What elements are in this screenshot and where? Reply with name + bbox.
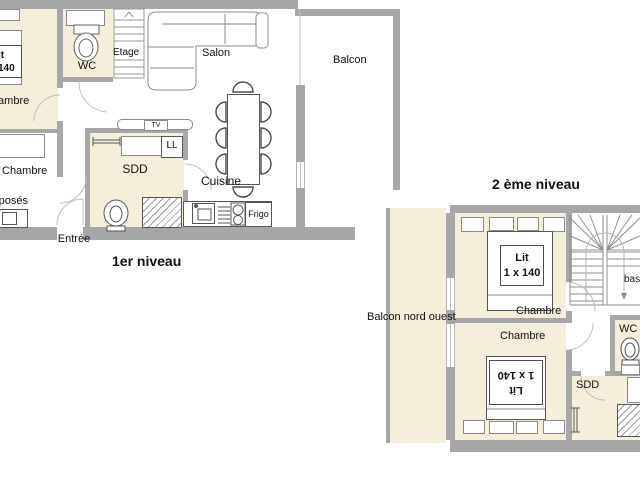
- level1-balcon-label: Balcon: [333, 54, 367, 67]
- level2-title: 2 ème niveau: [492, 176, 580, 192]
- level1-salon-label: Salon: [202, 47, 230, 60]
- level2-sdd-label: SDD: [576, 379, 599, 392]
- bed-size-line1: Lit: [509, 383, 522, 397]
- bed-size-line2: 1 x 140: [0, 62, 15, 75]
- washing-machine-label: LL: [161, 140, 183, 152]
- level1-chambre-top-label: Chambre: [0, 95, 29, 108]
- kitchen-sink-detail: [195, 205, 212, 221]
- level1-etage-label: Etage: [113, 47, 139, 59]
- toilet-icon: [74, 25, 99, 61]
- level2-chambre-top-label: Chambre: [516, 305, 561, 318]
- stove-icon: [231, 203, 245, 225]
- bed-label-rotated: Lit 1 x 140: [489, 360, 543, 405]
- toilet-icon: [621, 338, 639, 365]
- level1-cuisine-label: Cuisine: [201, 175, 241, 189]
- bed-size-line1: Lit: [515, 251, 528, 265]
- level1-sdd-label: SDD: [110, 163, 160, 177]
- stairs-up-icon: [114, 9, 144, 78]
- bed-size-line2: 1 x 140: [498, 368, 535, 382]
- stairs-direction-label: bas: [624, 274, 640, 286]
- toilet-icon: [104, 200, 128, 231]
- level2-wc-label: WC: [619, 323, 637, 336]
- bed-label: Lit 1 x 140: [500, 245, 544, 286]
- dish-rack-icon: [218, 207, 230, 223]
- fridge-label: Frigo: [245, 209, 272, 219]
- level2-balcon-label: Balcon nord ouest: [367, 311, 456, 324]
- bed-size-line2: 1 x 140: [504, 266, 541, 280]
- level1-title: 1er niveau: [112, 253, 181, 269]
- bed-size-line1: Lit: [0, 49, 4, 62]
- towel-rail-icon: [93, 137, 120, 146]
- tv-label: TV: [144, 120, 168, 131]
- level1-chambre-mid-label: Chambre: [2, 165, 47, 178]
- stairs-down-icon: [570, 215, 640, 305]
- level1-bunk-label: superposés: [0, 195, 28, 208]
- towel-rail-icon: [571, 408, 580, 432]
- level1-wc-label: WC: [63, 60, 111, 73]
- bed-label: Lit 1 x 140: [0, 45, 22, 78]
- level2-chambre-bottom-label: Chambre: [500, 330, 545, 343]
- floor-plan: Lit 1 x 140 Lit 1 x 140 Lit 1 x 140 Cham…: [0, 0, 640, 480]
- level1-entree-label: Entrée: [52, 233, 96, 246]
